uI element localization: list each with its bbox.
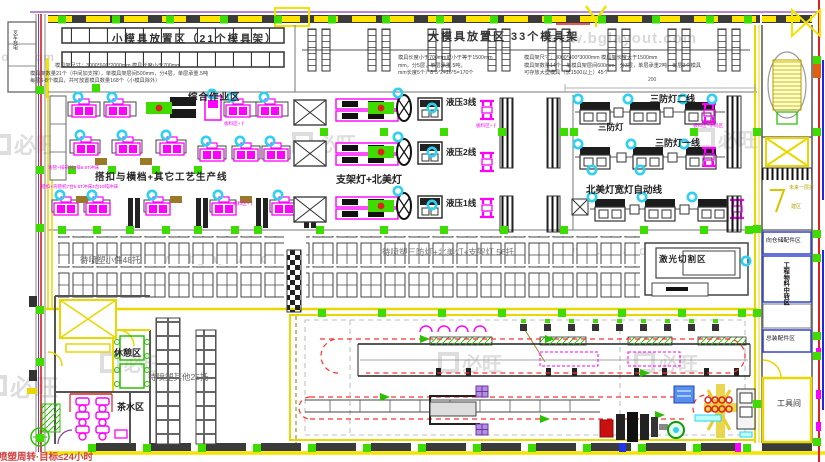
- line-label-triproof-mid: 三防灯: [598, 123, 624, 132]
- board-area-label: 板料区+∮: [476, 124, 497, 129]
- room-label-future-1: 未来一层扩: [789, 186, 814, 191]
- spec-large-mold-l2: mm，分5层，单层承重.5吨，: [398, 64, 466, 69]
- spec-small-mold-3: 每层6-8个模具，共可放置模具数量168个（小模具除外）: [30, 79, 160, 84]
- spray-path-red: [299, 339, 745, 421]
- room-label-tool: 工具间: [777, 400, 801, 408]
- room-label-rest: 休憩区: [114, 349, 141, 358]
- control-box: [674, 386, 694, 403]
- line-label-triproof-1: 三防灯一线: [655, 139, 700, 148]
- spec-small-mold-2: 模具架数量21个（中间加支撑），单模具架层间500mm，分4层，单层承重.5吨: [30, 72, 208, 77]
- line-label-hydraulic-3: 液压3线: [446, 98, 476, 107]
- triproof-lines: [572, 96, 744, 232]
- green-pad-marker: [146, 102, 172, 114]
- spec-large-mold-r2: 模具架数量14个，单模具架层间600mm，分3层，单层承重2吨，每层3个模具: [524, 64, 701, 69]
- zone-title-buckle: 搭扣与横档+其它工艺生产线: [95, 173, 228, 183]
- motor-unit: [600, 420, 613, 437]
- zone-title-large-mold: 大模具放置区 33个模具架: [428, 32, 579, 43]
- room-label-assembly: 总装配件区: [766, 337, 795, 343]
- buckle-line-equipment: [52, 196, 316, 228]
- spray-hall: [290, 315, 755, 443]
- pallet-rack-strip: [196, 330, 216, 444]
- pallet-label-small: 待喷塑小件48托: [80, 256, 140, 265]
- spec-large-mold-r3: 可存放大型模具（长1500以上）45个: [524, 71, 609, 76]
- spec-large-mold-r1: 模具架尺寸：3000*400*3000mm 模具架长度大于1500mm: [524, 56, 657, 61]
- board-area-label: 板料区+∮: [233, 202, 254, 207]
- flow-arrows: [380, 335, 665, 423]
- right-rooms: [762, 10, 821, 443]
- dimension-200: 200: [648, 78, 656, 83]
- pallet-bands: [58, 236, 640, 312]
- checker-strip: [287, 250, 301, 312]
- zone-title-work: 综合作业区: [188, 93, 241, 103]
- note-spray-target: 喷塑周转·目标≤24小时: [0, 453, 93, 462]
- room-label-to-warehouse: 向仓储配件区: [766, 239, 801, 245]
- spec-large-mold-l1: 模具长度小于700mm或小于等于1500mm: [398, 56, 493, 61]
- zone-title-bracket-lamp: 支架灯+北美灯: [336, 176, 402, 186]
- lower-left-rooms: [42, 296, 216, 444]
- floor-plan-canvas: www.bglayout.com www.bglayout.com www.bg…: [0, 0, 825, 462]
- laser-zone: [645, 243, 748, 296]
- stair-rack: [773, 60, 801, 110]
- pallet-label-other: 待喷塑其他25托: [148, 373, 208, 382]
- stairs: [42, 404, 60, 432]
- buckle-note-bottom: 搭扣+弯管机7台6.5T冲床4台10吨冲床: [41, 185, 118, 190]
- hydraulic-lines: [294, 95, 560, 232]
- room-label-future-2: 建区: [791, 205, 801, 210]
- buckle-note-top: 弯管+排布共2排6.5T冲床: [48, 166, 99, 171]
- board-area-label: 板料区+∮: [224, 122, 245, 127]
- line-label-triproof-2: 三防灯二线: [650, 95, 695, 104]
- zone-title-small-mold: 小模具放置区（21个模具架）: [112, 34, 278, 45]
- pallet-label-main: 待喷塑三防灯+北美灯+支架灯 56托: [382, 248, 514, 257]
- tool-room-walls: [763, 378, 811, 442]
- room-label-transfer: 工程物料中转区: [782, 262, 788, 305]
- room-label-tea: 茶水区: [117, 403, 144, 412]
- spec-large-mold-l3: mm长度5个）8*5*2+16*5=170个: [398, 71, 474, 76]
- line-label-na-auto: 北美灯宽灯自动线: [586, 186, 662, 196]
- top-wall: [30, 6, 820, 27]
- line-label-hydraulic-1: 液压1线: [446, 199, 476, 208]
- spec-small-mold-1: 模具架尺寸：3000*600*2000mm 模具长度小于700mm: [55, 64, 180, 69]
- room-label-forklift: 叉车充电: [12, 30, 17, 50]
- board-area-label: 板料区+条码区: [693, 124, 723, 129]
- door-arc: [763, 360, 781, 378]
- rest-area-table: [120, 364, 144, 388]
- line-label-hydraulic-2: 液压2线: [446, 148, 476, 157]
- room-label-laser: 激光切割区: [659, 255, 707, 264]
